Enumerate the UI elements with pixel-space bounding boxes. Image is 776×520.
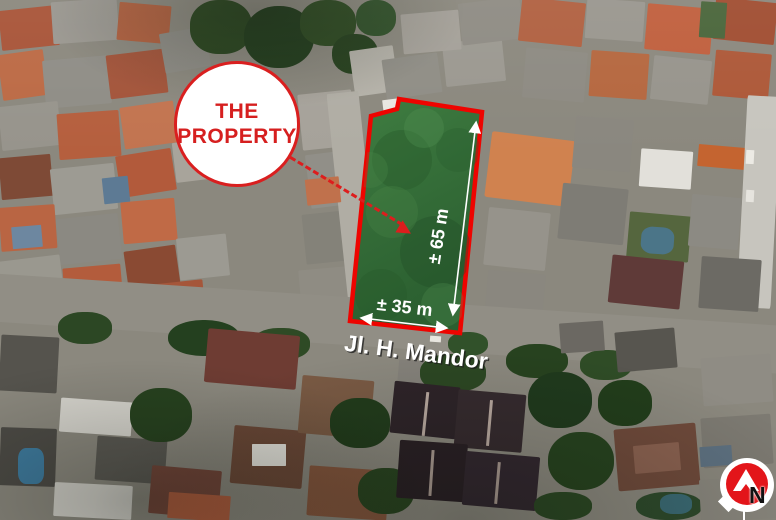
property-callout-line1: THE xyxy=(215,99,259,124)
compass-north-letter: N xyxy=(749,484,766,507)
property-callout: THE PROPERTY xyxy=(174,61,300,187)
satellite-map: ± 65 m ± 35 m Jl. H. Mandor Jl. H. Mando… xyxy=(0,0,776,520)
north-compass-icon: N xyxy=(720,458,774,512)
annotation-overlay: ± 65 m ± 35 m Jl. H. Mandor Jl. H. Mando… xyxy=(0,0,776,520)
street-label: Jl. H. Mandor xyxy=(343,330,490,375)
property-callout-line2: PROPERTY xyxy=(177,124,297,149)
street-label-group: Jl. H. Mandor Jl. H. Mandor xyxy=(343,330,491,376)
